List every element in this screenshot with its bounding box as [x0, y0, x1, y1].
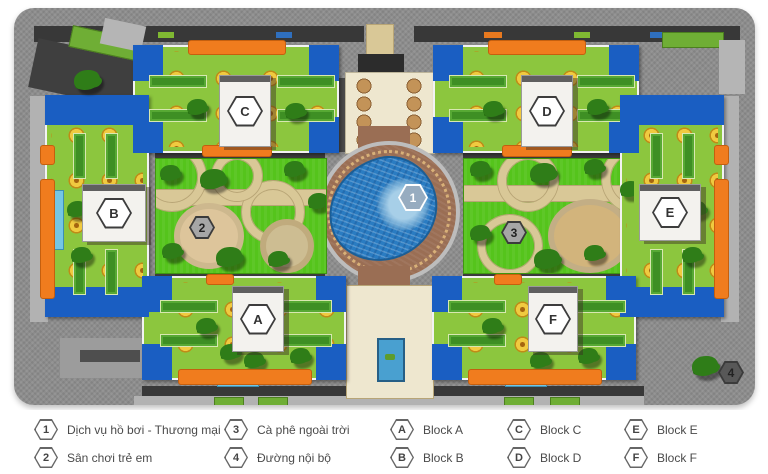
- planter: [277, 75, 335, 88]
- orange-canopy: [206, 274, 234, 285]
- blue-corner: [432, 344, 462, 380]
- blue-corner: [142, 344, 172, 380]
- block-core: D: [521, 75, 573, 147]
- tree: [470, 161, 490, 177]
- building-block-c: C: [133, 45, 339, 153]
- kiosk-building: [358, 54, 404, 74]
- roof-chip: [574, 32, 590, 38]
- orange-canopy: [488, 40, 586, 55]
- roofline: [142, 386, 354, 396]
- planter: [105, 133, 118, 179]
- planter: [577, 75, 635, 88]
- block-core: F: [528, 286, 578, 352]
- roof-chip: [276, 32, 292, 38]
- blue-corner: [433, 117, 463, 153]
- blue-edge: [45, 95, 149, 125]
- building-block-d: D: [433, 45, 639, 153]
- marker-playground: 2: [189, 216, 215, 239]
- legend-item: B Block B: [390, 447, 464, 468]
- block-f-label: F: [535, 304, 571, 335]
- legend-column: E Block E F Block F: [624, 419, 698, 468]
- orange-canopy: [468, 369, 602, 385]
- legend-label: Cà phê ngoài trời: [257, 423, 350, 437]
- block-core: C: [219, 75, 271, 147]
- orange-canopy: [178, 369, 312, 385]
- tree: [534, 249, 560, 269]
- orange-canopy: [494, 274, 522, 285]
- orange-canopy: [714, 145, 729, 165]
- block-core: E: [639, 184, 701, 241]
- planter: [650, 249, 663, 295]
- legend-hex-b: B: [390, 447, 414, 468]
- roofline: [432, 386, 644, 396]
- legend-label: Block C: [540, 423, 581, 437]
- block-a-label: A: [240, 304, 276, 335]
- legend-item: 4 Đường nội bộ: [224, 447, 350, 468]
- master-plan-map: C D: [14, 8, 755, 405]
- garden-right: [463, 158, 635, 274]
- legend-hex-f: F: [624, 447, 648, 468]
- legend-item: F Block F: [624, 447, 698, 468]
- legend-hex-2: 2: [34, 447, 58, 468]
- tree: [692, 356, 718, 376]
- legend-column: 1 Dịch vụ hồ bơi - Thương mại 2 Sân chơi…: [34, 419, 221, 468]
- legend: 1 Dịch vụ hồ bơi - Thương mại 2 Sân chơi…: [0, 410, 768, 474]
- legend-label: Block F: [657, 451, 697, 465]
- blue-corner: [309, 117, 339, 153]
- garden-left: [155, 158, 327, 274]
- legend-label: Block A: [423, 423, 463, 437]
- garden-plaza: [260, 219, 314, 273]
- legend-item: 2 Sân chơi trẻ em: [34, 447, 221, 468]
- hedge: [504, 397, 534, 405]
- blue-corner: [606, 344, 636, 380]
- tree: [584, 159, 604, 175]
- legend-column: A Block A B Block B: [390, 419, 464, 468]
- legend-label: Đường nội bộ: [257, 451, 331, 465]
- marker-pool-services: 1: [398, 184, 428, 211]
- legend-label: Block B: [423, 451, 464, 465]
- legend-item: A Block A: [390, 419, 464, 440]
- roof-chip: [158, 32, 174, 38]
- planter: [448, 300, 506, 313]
- tree: [162, 243, 182, 259]
- block-core: A: [232, 286, 284, 352]
- block-d-label: D: [529, 96, 565, 127]
- blue-corner: [316, 344, 346, 380]
- legend-hex-3: 3: [224, 419, 248, 440]
- planter: [160, 334, 218, 347]
- orange-canopy: [188, 40, 286, 55]
- marker-outdoor-cafe: 3: [501, 221, 527, 244]
- tree: [620, 181, 635, 197]
- planter: [160, 300, 218, 313]
- planter: [650, 133, 663, 179]
- legend-hex-e: E: [624, 419, 648, 440]
- legend-item: 1 Dịch vụ hồ bơi - Thương mại: [34, 419, 221, 440]
- hedge: [550, 397, 580, 405]
- block-e-label: E: [652, 197, 688, 228]
- legend-label: Block D: [540, 451, 581, 465]
- planter: [105, 249, 118, 295]
- orange-canopy: [40, 179, 55, 299]
- legend-item: 3 Cà phê ngoài trời: [224, 419, 350, 440]
- building-block-f: F: [432, 276, 636, 380]
- roof-chip: [484, 32, 502, 38]
- legend-item: C Block C: [507, 419, 581, 440]
- blue-edge: [620, 95, 724, 125]
- block-core: B: [82, 184, 146, 242]
- tree: [216, 247, 242, 267]
- marker-internal-road: 4: [718, 361, 744, 384]
- legend-item: D Block D: [507, 447, 581, 468]
- block-c-label: C: [227, 96, 263, 127]
- fountain: [377, 338, 405, 382]
- legend-hex-4: 4: [224, 447, 248, 468]
- legend-column: 3 Cà phê ngoài trời 4 Đường nội bộ: [224, 419, 350, 468]
- block-b-label: B: [96, 198, 132, 229]
- building-block-a: A: [142, 276, 346, 380]
- hedge: [662, 32, 724, 48]
- legend-hex-d: D: [507, 447, 531, 468]
- legend-label: Block E: [657, 423, 698, 437]
- parked-vehicle: [80, 350, 140, 362]
- site-plan-page: C D: [0, 0, 768, 474]
- legend-column: C Block C D Block D: [507, 419, 581, 468]
- adjacent-building: [719, 40, 745, 94]
- orange-canopy: [40, 145, 55, 165]
- planter: [73, 133, 86, 179]
- tree: [308, 193, 327, 209]
- hedge: [258, 397, 288, 405]
- legend-hex-1: 1: [34, 419, 58, 440]
- hedge: [214, 397, 244, 405]
- tree: [284, 161, 304, 177]
- legend-label: Dịch vụ hồ bơi - Thương mại: [67, 423, 221, 437]
- orange-canopy: [714, 179, 729, 299]
- planter: [682, 133, 695, 179]
- planter: [448, 334, 506, 347]
- legend-item: E Block E: [624, 419, 698, 440]
- legend-hex-c: C: [507, 419, 531, 440]
- planter: [449, 75, 507, 88]
- planter: [149, 75, 207, 88]
- blue-edge: [45, 287, 149, 317]
- legend-label: Sân chơi trẻ em: [67, 451, 152, 465]
- legend-hex-a: A: [390, 419, 414, 440]
